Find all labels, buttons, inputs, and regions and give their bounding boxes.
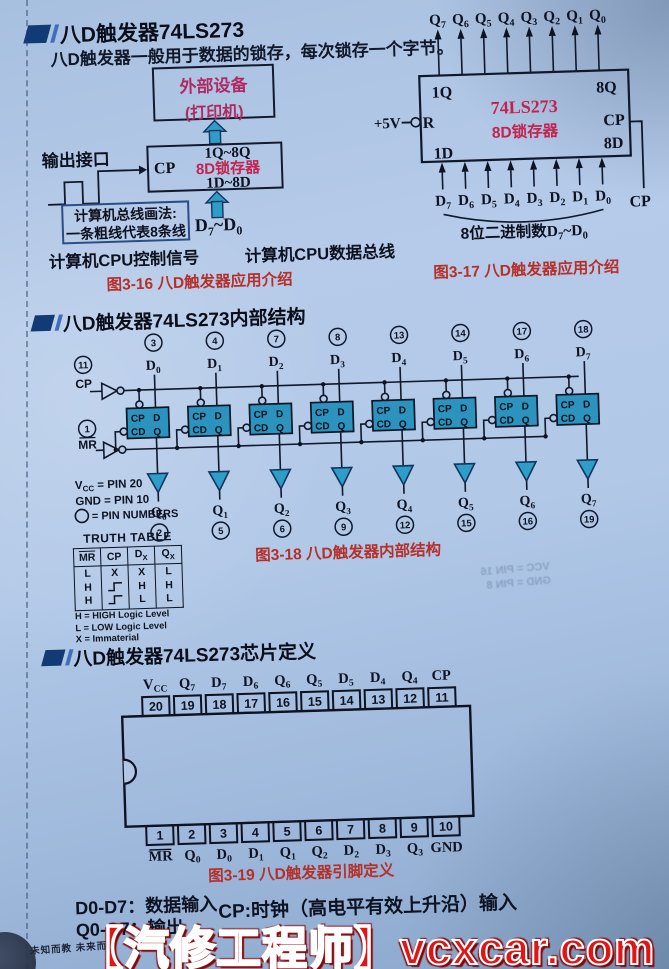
ff-d-label: D — [399, 405, 407, 416]
q-arrow — [484, 38, 485, 74]
d-input-line — [277, 371, 278, 404]
flipflop-unit: CPDCDQ18D7Q719 — [540, 320, 603, 529]
ff-cp-label: CP — [499, 402, 514, 413]
pin-label: D1 — [248, 845, 264, 863]
q-pin-label: Q1 — [566, 8, 583, 27]
ff-d-label: D — [153, 413, 161, 424]
fig17-caption: 图3-17 八D触发器应用介绍 — [433, 255, 620, 283]
d-pin-label: D4 — [504, 191, 520, 210]
pin-label: D0 — [216, 846, 232, 864]
corner-8q: 8Q — [596, 79, 617, 97]
q-label: Q4 — [396, 498, 412, 515]
d-label: D7 — [575, 345, 591, 362]
q-pin-label: Q5 — [475, 11, 492, 30]
cd-wire — [361, 424, 367, 442]
top-pin-number: 17 — [516, 326, 527, 337]
ff-cd-label: CD — [254, 423, 269, 434]
pin-label: Q5 — [306, 671, 323, 690]
d-pin-label: D0 — [595, 188, 611, 207]
rising-edge-icon — [107, 580, 123, 591]
arrowhead-icon — [553, 159, 560, 169]
q-output-line — [218, 436, 219, 472]
q-label: Q3 — [335, 499, 351, 516]
junction-dot — [236, 444, 241, 449]
d-pin-label: D5 — [481, 192, 497, 211]
cd-bubble-icon — [304, 422, 311, 429]
binary-bus-label: 8位二进制数D7~D0 — [460, 220, 588, 245]
junction-dot — [566, 374, 571, 379]
junction-dot — [321, 382, 326, 387]
pin-number: 2 — [188, 828, 195, 842]
arrowhead-icon — [503, 27, 510, 37]
cp-bubble-icon — [259, 397, 266, 404]
q-arrow — [529, 37, 530, 73]
d-label: D6 — [514, 347, 530, 364]
q-output-line — [463, 428, 464, 464]
figure-3-17-chip-application: Q7D7Q6D6Q5D5Q4D4Q3D3Q2D2Q1D1Q0D0 1Q 8Q 7… — [363, 2, 662, 279]
data-bus-label: D7~D0 — [194, 214, 242, 240]
pin-number: 7 — [347, 823, 354, 837]
external-device-box: 外部设备 (打印机) — [152, 64, 276, 122]
bottom-pin-number: 6 — [279, 524, 285, 535]
ff-cd-label: CD — [192, 425, 207, 436]
flipflop-units: CPDCDQ3D0Q02CPDCDQ4D1Q15CPDCDQ7D2Q26CPDC… — [110, 320, 602, 542]
corner-1q: 1Q — [431, 84, 452, 102]
pin-label: GND — [430, 839, 463, 856]
arrowhead-icon — [575, 158, 582, 168]
q-pin-label: Q4 — [497, 10, 514, 29]
pin-number: 13 — [371, 693, 385, 707]
junction-dot — [543, 434, 548, 439]
junction-dot — [444, 378, 449, 383]
output-buffer-icon — [209, 471, 230, 491]
bottom-pin-row: 1MR2Q03D04D15Q16Q27D28D39Q310GND — [146, 816, 463, 867]
top-pin-number: 8 — [335, 332, 341, 343]
pin-number: 9 — [411, 821, 418, 835]
bottom-pin-number: 15 — [461, 518, 473, 529]
ff-d-label: D — [460, 403, 468, 414]
section-bullet-icon — [41, 650, 65, 667]
cd-wire — [484, 420, 490, 438]
bottom-pin-number: 9 — [341, 522, 347, 533]
junction-dot — [359, 440, 364, 445]
d-arrow — [465, 172, 466, 189]
pin-label: Q6 — [274, 672, 291, 691]
top-pin-number: 3 — [151, 338, 157, 349]
pin-number: 14 — [339, 694, 353, 708]
truth-table-grid: MRCPDXQX LHHXXHLLHL — [73, 545, 184, 611]
mr-pin-number: 1 — [84, 424, 90, 435]
pin-number: 5 — [283, 825, 290, 839]
cp-bubble-icon — [504, 389, 511, 396]
inverter-bubble-icon — [119, 446, 126, 453]
pin-number: 18 — [212, 698, 226, 712]
pin-label: Q4 — [401, 668, 418, 687]
fig19-caption: 图3-19 八D触发器引脚定义 — [208, 858, 395, 886]
top-pin-number: 7 — [274, 334, 280, 345]
ff-cd-label: CD — [499, 415, 514, 426]
latch-cp-label: CP — [154, 160, 176, 179]
pin-label: D4 — [370, 669, 386, 687]
arrowhead-icon — [530, 159, 537, 169]
cp-pin-number: 11 — [78, 360, 89, 371]
junction-dot — [482, 436, 487, 441]
q-pin-label: Q7 — [429, 12, 446, 31]
flipflop-unit: CPDCDQ14D5Q515 — [417, 324, 480, 533]
cd-bubble-icon — [489, 416, 496, 423]
ff-q-label: Q — [399, 419, 407, 430]
d-input-line — [216, 373, 217, 406]
q-output-line — [586, 424, 587, 460]
q-pin-label: Q3 — [520, 9, 537, 28]
junction-dot — [505, 376, 510, 381]
q-output-line — [341, 432, 342, 468]
fig18-caption: 图3-18 八D触发器内部结构 — [255, 538, 442, 566]
d-pin-label: D2 — [549, 190, 565, 209]
cpu-control-label: 计算机CPU控制信号 — [48, 244, 199, 273]
pin-number: 3 — [220, 827, 227, 841]
cd-bubble-icon — [120, 428, 127, 435]
q-label: Q2 — [274, 501, 290, 518]
cp-bus-line — [124, 376, 579, 390]
d-pin-label: D7 — [435, 193, 451, 212]
pin-label: Q2 — [311, 843, 328, 862]
cd-wire — [299, 426, 305, 444]
pin-circle-legend-icon — [75, 509, 88, 522]
reset-bubble-icon — [411, 118, 420, 127]
flipflop-unit: CPDCDQ13D4Q412 — [356, 326, 419, 535]
d-arrow — [534, 170, 535, 187]
chip-subtitle: 8D锁存器 — [492, 121, 559, 142]
output-buffer-icon — [516, 462, 537, 482]
ff-cp-label: CP — [376, 406, 391, 417]
junction-dot — [175, 446, 180, 451]
d-input-line — [584, 361, 585, 394]
corner-1d: 1D — [433, 145, 453, 163]
pin-label: D3 — [375, 841, 391, 859]
flipflop-unit: CPDCDQ7D2Q26 — [233, 330, 296, 539]
pin-label: Q3 — [407, 840, 424, 859]
chip-notch-icon — [124, 759, 137, 783]
d-arrow — [488, 171, 489, 188]
truth-table-notes: H = HIGH Logic LevelL = LOW Logic LevelX… — [75, 608, 186, 646]
arrowhead-icon — [434, 29, 441, 39]
ff-cp-label: CP — [561, 400, 576, 411]
pin-label: MR — [148, 848, 173, 865]
ff-q-label: Q — [215, 425, 223, 436]
q-arrow — [575, 35, 576, 71]
figure-3-19-pinout: 20VCC19Q718D717D616Q615Q514D513D412Q411C… — [71, 659, 547, 874]
ff-q-label: Q — [522, 415, 530, 426]
output-buffer-icon — [270, 469, 291, 489]
pin-label: VCC — [143, 676, 168, 695]
ff-cd-label: CD — [131, 427, 146, 438]
d-input-line — [154, 375, 155, 408]
d-label: D2 — [268, 355, 284, 372]
pin-number: 10 — [439, 819, 453, 833]
q-pin-label: Q6 — [452, 12, 469, 31]
bottom-pin-number: 19 — [584, 514, 595, 525]
ff-cp-label: CP — [192, 411, 207, 422]
arrowhead-icon — [549, 26, 556, 36]
d-label: D5 — [453, 349, 469, 366]
d-input-line — [400, 367, 401, 400]
ff-cd-label: CD — [376, 419, 391, 430]
top-pin-number: 4 — [212, 336, 218, 347]
q-output-line — [279, 434, 280, 470]
ff-d-label: D — [214, 411, 222, 422]
cd-bubble-icon — [550, 414, 557, 421]
chip-body — [122, 706, 473, 827]
dbus-sub2: 0 — [236, 223, 242, 237]
ff-cp-label: CP — [315, 408, 330, 419]
flipflop-unit: CPDCDQ4D1Q15 — [171, 332, 234, 541]
cd-wire — [422, 422, 428, 440]
dbus-base2: D — [223, 214, 237, 234]
junction-dot — [420, 438, 425, 443]
dbus-base1: D — [194, 215, 208, 235]
cp-bubble-icon — [197, 399, 204, 406]
junction-dot — [382, 380, 387, 385]
cd-wire — [545, 418, 551, 436]
cd-wire — [238, 428, 244, 446]
ff-cp-label: CP — [254, 410, 269, 421]
photographed-slide: 八D触发器74LS273 八D触发器一般用于数据的锁存，每次锁存一个字节。 外部… — [0, 0, 669, 969]
cd-wire — [177, 430, 183, 448]
pin-number: 19 — [181, 699, 195, 713]
arrowhead-icon — [461, 162, 468, 172]
cp-bubble-icon — [136, 401, 143, 408]
pin-number: 20 — [149, 700, 163, 714]
vcc-note: VCC = PIN 20 — [75, 478, 143, 494]
pin-number: 6 — [315, 824, 322, 838]
bottom-pin-number: 16 — [522, 516, 533, 527]
top-pin-number: 13 — [394, 330, 405, 341]
flipflop-unit: CPDCDQ8D3Q39 — [294, 328, 357, 537]
d-label: D3 — [330, 353, 346, 370]
ff-q-label: Q — [337, 421, 345, 432]
gnd-note: GND = PIN 10 — [75, 494, 149, 508]
q-arrow — [438, 40, 439, 76]
ff-cd-label: CD — [315, 421, 330, 432]
bottom-pin-number: 12 — [400, 520, 411, 531]
d-arrow — [602, 167, 603, 184]
ff-cd-label: CD — [561, 413, 576, 424]
pin-label: D6 — [243, 673, 259, 691]
d-arrow — [556, 169, 557, 186]
cd-bubble-icon — [243, 424, 250, 431]
pin-number: 12 — [403, 692, 417, 706]
output-buffer-icon — [148, 473, 169, 493]
junction-dot — [137, 388, 142, 393]
d-arrow — [511, 170, 512, 187]
truth-header: DX — [127, 546, 155, 565]
q-label: Q5 — [458, 496, 474, 513]
d-input-line — [523, 363, 524, 396]
output-port-label: 输出接口 — [41, 145, 110, 172]
pin-number: 1 — [156, 829, 163, 843]
watermark: 【汽修工程师】vcxcar.com — [78, 912, 655, 969]
ff-d-label: D — [337, 407, 345, 418]
pin-label: Q1 — [279, 844, 296, 863]
junction-dot — [260, 384, 265, 389]
q-pin-label: Q0 — [589, 7, 606, 26]
q-output-line — [156, 438, 157, 474]
ff-q-label: Q — [460, 417, 468, 428]
pin-label: CP — [431, 667, 451, 684]
cp-bubble-icon — [381, 393, 388, 400]
overline — [149, 849, 171, 850]
truth-header: CP — [100, 547, 128, 566]
bottom-pin-number: 5 — [218, 526, 224, 537]
inverter-bubble-icon — [117, 387, 124, 394]
d-label: D4 — [391, 351, 407, 368]
cp-bubble-icon — [320, 395, 327, 402]
output-buffer-icon — [577, 460, 598, 480]
pin-number: 15 — [308, 695, 322, 709]
latch-box: CP 1Q~8Q 8D锁存器 1D~8D — [146, 141, 283, 192]
q-arrow — [598, 35, 599, 71]
arrowhead-icon — [507, 160, 514, 170]
right-8d-label: 8D — [604, 135, 624, 153]
slide-content: 八D触发器74LS273 八D触发器一般用于数据的锁存，每次锁存一个字节。 外部… — [0, 0, 669, 969]
output-buffer-icon — [455, 464, 476, 484]
arrowhead-icon — [139, 165, 147, 174]
section-bullet-icon — [31, 315, 55, 332]
cd-bubble-icon — [366, 420, 373, 427]
top-pin-number: 14 — [455, 328, 467, 339]
ff-d-label: D — [276, 409, 284, 420]
truth-column: LHL — [155, 563, 183, 608]
truth-column: LHH — [74, 566, 102, 611]
rising-edge-icon — [107, 594, 123, 605]
q-pin-label: Q2 — [543, 9, 560, 28]
pin-number: 16 — [276, 696, 290, 710]
output-buffer-icon — [393, 466, 414, 486]
chip-name: 74LS273 — [490, 96, 558, 118]
bleed-through-text: VCC = PIN 16 GND = PIN 8 — [480, 560, 551, 594]
junction-dot — [298, 442, 303, 447]
output-buffer-icon — [332, 467, 353, 487]
pin-label: Q7 — [179, 675, 196, 694]
ff-cd-label: CD — [438, 417, 453, 428]
pin-label: D7 — [211, 674, 227, 692]
pin-number: 11 — [435, 691, 449, 705]
truth-header: QX — [154, 545, 182, 564]
external-device-label: 外部设备 — [154, 70, 273, 99]
supply-label: +5V — [374, 116, 402, 133]
truth-table-title: TRUTH TABLE — [72, 529, 182, 546]
cp-bubble-icon — [443, 391, 450, 398]
mr-label: MR — [78, 437, 97, 452]
q-output-line — [402, 430, 403, 466]
right-cp-label: CP — [603, 112, 625, 130]
arrowhead-icon — [598, 157, 605, 167]
cd-bubble-icon — [181, 426, 188, 433]
q-label: Q1 — [212, 503, 228, 520]
cp-label: CP — [75, 377, 92, 392]
ff-d-label: D — [521, 401, 529, 412]
truth-column: XHL — [128, 564, 156, 609]
d-pin-label: D1 — [572, 189, 588, 208]
flipflop-unit: CPDCDQ17D6Q616 — [478, 322, 541, 531]
cp-bubble-icon — [566, 387, 573, 394]
d-arrow — [579, 168, 580, 185]
q-label: Q7 — [581, 492, 597, 509]
section-bullet-icon — [23, 25, 51, 44]
inverter-icon — [102, 383, 117, 399]
junction-dot — [198, 386, 203, 391]
cp-out-label: CP — [629, 193, 651, 211]
q-arrow — [552, 36, 553, 72]
arrowhead-icon — [484, 161, 491, 171]
ff-d-label: D — [583, 399, 591, 410]
ff-q-label: Q — [153, 427, 161, 438]
pin-label: D2 — [343, 842, 359, 860]
q-label: Q6 — [519, 494, 535, 511]
d-pin-label: D3 — [526, 190, 542, 209]
printer-label: (打印机) — [155, 97, 274, 125]
d-label: D0 — [146, 358, 162, 375]
ff-q-label: Q — [276, 423, 284, 434]
truth-header: MR — [73, 548, 101, 567]
d-input-line — [339, 369, 340, 402]
bus-note-box: 计算机总线画法: 一条粗线代表8条线 — [61, 200, 190, 244]
q-output-line — [525, 426, 526, 462]
fig16-caption: 图3-16 八D触发器应用介绍 — [106, 267, 293, 295]
figure-3-18-internal-structure: 11 CP 1 MR CPDCDQ3D0Q02CPDCDQ4D1Q15CPDCD… — [30, 315, 669, 550]
q-arrow — [507, 37, 508, 73]
clock-pulse-waveform — [47, 170, 140, 205]
q-arrow — [461, 39, 462, 75]
ff-cp-label: CP — [131, 413, 146, 424]
truth-column: X — [101, 565, 129, 610]
pin-number: 17 — [244, 697, 258, 711]
pin-label: D5 — [338, 670, 354, 688]
truth-table: TRUTH TABLE MRCPDXQX LHHXXHLLHL H = HIGH… — [72, 529, 186, 646]
arrowhead-icon — [457, 29, 464, 39]
pin-label: Q0 — [184, 847, 201, 866]
top-pin-number: 18 — [578, 324, 589, 335]
arrowhead-icon — [526, 27, 533, 37]
ff-q-label: Q — [583, 413, 591, 424]
d-arrow — [442, 172, 443, 189]
pin-number: 8 — [379, 822, 386, 836]
arrowhead-icon — [480, 28, 487, 38]
cd-bubble-icon — [427, 418, 434, 425]
pin-number: 4 — [252, 826, 259, 840]
ff-cp-label: CP — [438, 404, 453, 415]
d-pin-label: D6 — [458, 192, 474, 211]
reset-r-label: R — [422, 115, 435, 132]
arrowhead-icon — [438, 162, 445, 172]
d-label: D1 — [207, 356, 223, 373]
d-input-line — [461, 365, 462, 398]
bus-note-line2: 一条粗线代表8条线 — [64, 221, 189, 243]
up-arrow-shaft — [209, 130, 220, 143]
